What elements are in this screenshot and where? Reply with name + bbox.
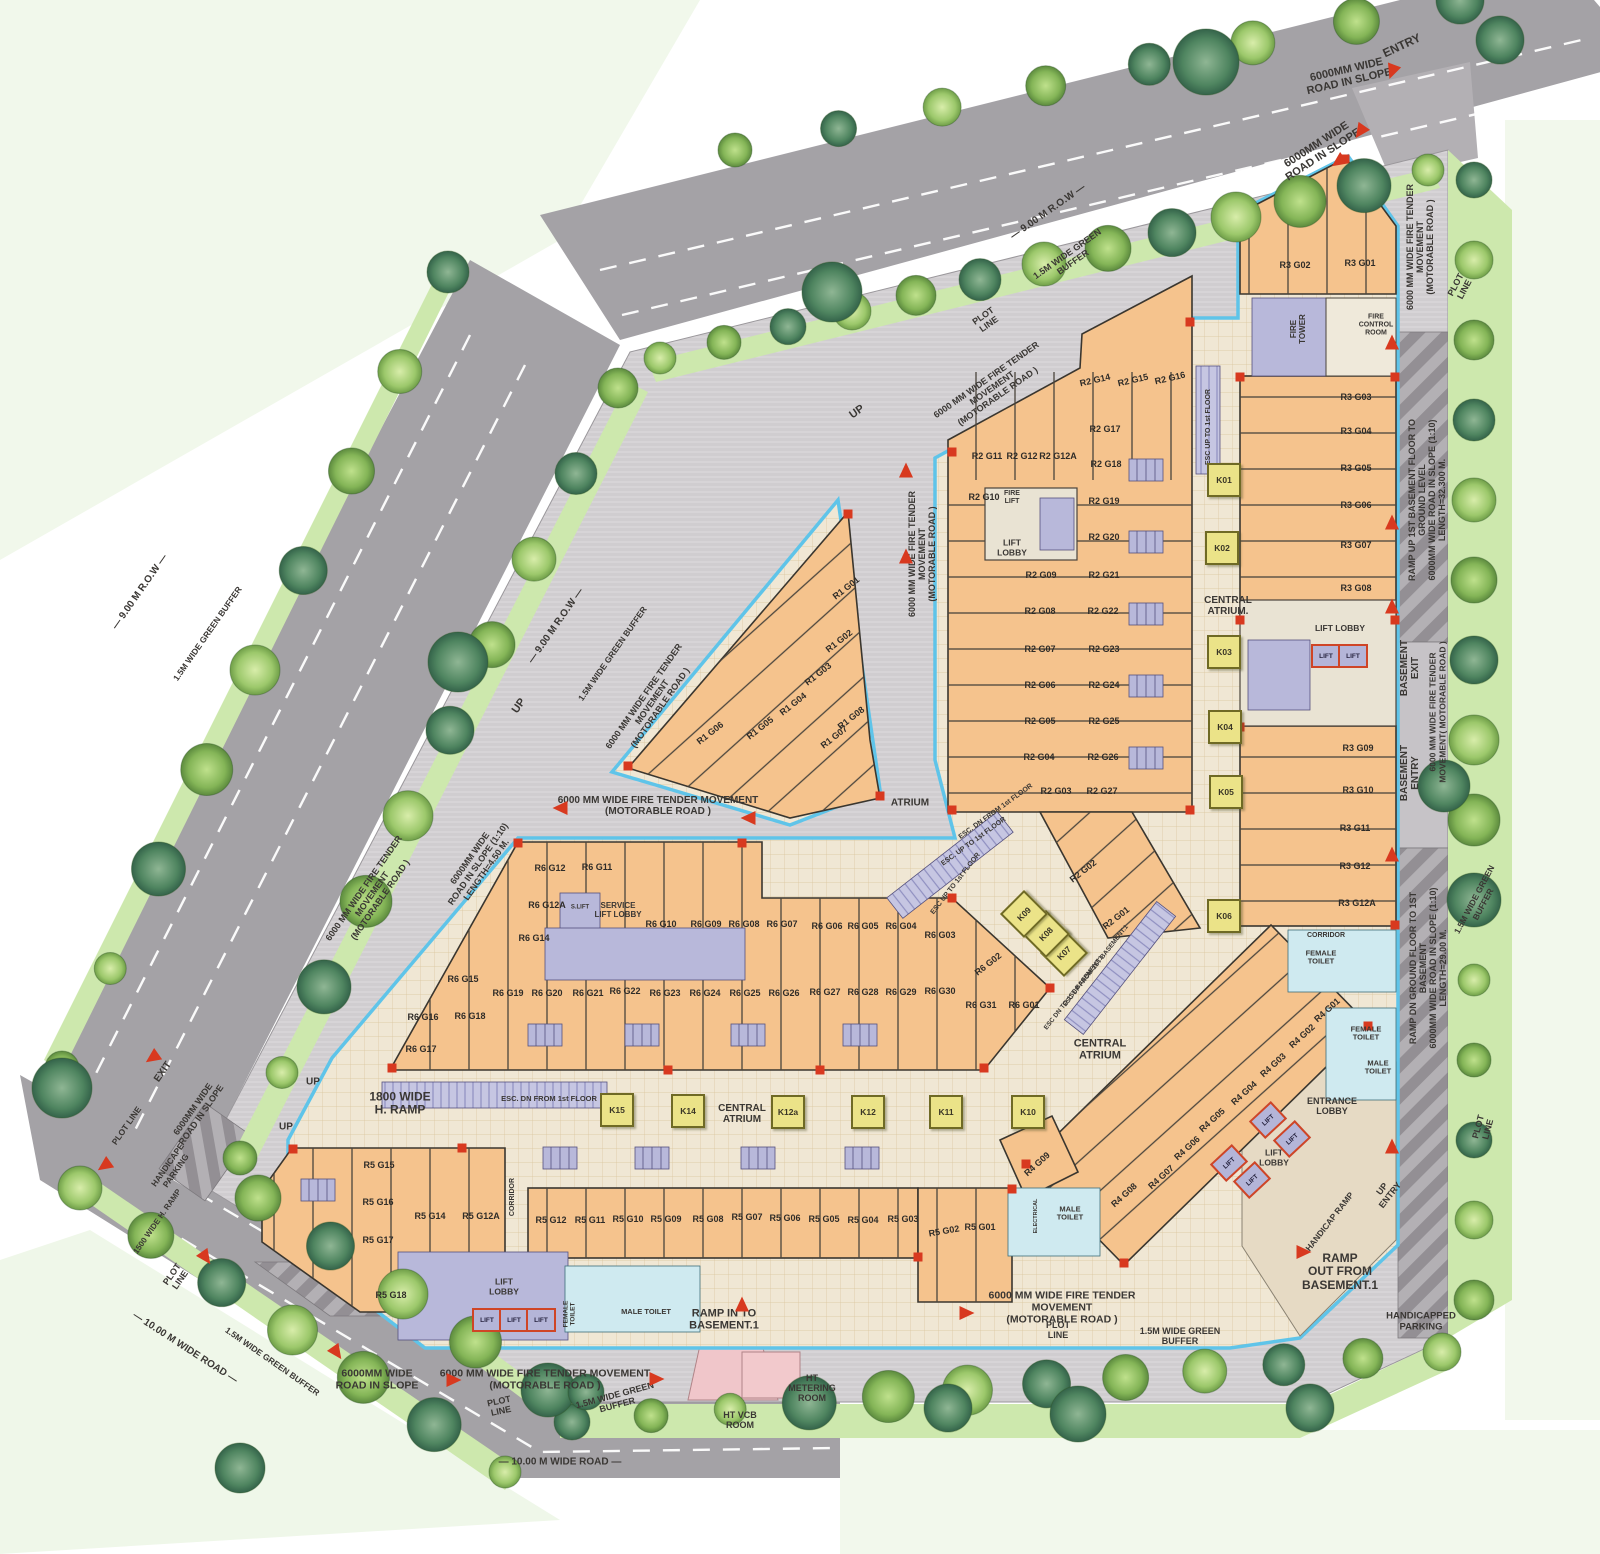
unit-label: R5 G03 [887,1214,918,1224]
fire-tender-mid: 6000 MM WIDE FIRE TENDER MOVEMENT (MOTOR… [558,795,759,817]
basement-exit: BASEMENT EXIT [1399,640,1421,696]
unit-label: R6 G20 [531,988,562,998]
unit-label: R2 G14 [1079,372,1111,389]
green-buffer-bottom-1: 1.5M WIDE GREEN BUFFER [575,1380,658,1420]
fire-tender-bottom-1: 6000 MM WIDE FIRE TENDER MOVEMENT (MOTOR… [440,1368,651,1392]
unit-label: R2 G25 [1088,716,1119,726]
unit-label: R3 G01 [1344,258,1375,268]
road-slope-tr-1: 6000MM WIDE ROAD IN SLOPE [1303,54,1393,98]
unit-label: R6 G09 [690,919,721,929]
service-lift-lobby: SERVICE LIFT LOBBY [594,902,641,920]
direction-arrow [1385,515,1399,530]
direction-arrow [1350,122,1370,142]
green-buffer-left-2: 1.5M WIDE GREEN BUFFER [172,585,245,683]
lift-lobby-r5: LIFT LOBBY [489,1277,519,1296]
unit-label: R5 G05 [808,1214,839,1224]
direction-arrow [1385,1139,1399,1154]
unit-label: R2 G06 [1024,680,1055,690]
unit-label: R4 G07 [1146,1163,1176,1191]
electrical: ELECTRICAL [1033,1199,1039,1234]
unit-label: R5 G07 [731,1212,762,1222]
direction-arrow [650,1372,665,1386]
unit-label: R6 G31 [965,1000,996,1010]
unit-label: R2 G19 [1088,496,1119,506]
wide-road-bottom: — 10.00 M WIDE ROAD — [499,1456,622,1467]
unit-label: R5 G09 [650,1214,681,1224]
row-left-2: — 9.00 M R.O.W — [110,552,170,631]
up-bl-1: UP [306,1076,320,1087]
corridor-left: CORRIDOR [509,1178,517,1216]
fire-control-room: FIRE CONTROL ROOM [1359,313,1394,336]
fire-tender-bottom-2: 6000 MM WIDE FIRE TENDER MOVEMENT (MOTOR… [988,1290,1135,1325]
handicapped-parking-br: HANDICAPPED PARKING [1386,1311,1456,1332]
unit-label: R2 G10 [968,492,999,502]
unit-label: R6 G23 [649,988,680,998]
kiosk-k11: K11 [929,1095,963,1129]
unit-label: R2 G18 [1090,459,1121,469]
kiosk-k04: K04 [1208,710,1242,744]
plot-line-left-2: PLOT LINE [161,1261,191,1292]
road-slope-tr-2: 6000MM WIDE ROAD IN SLOPE [1277,116,1363,184]
unit-label: R5 G10 [612,1214,643,1224]
plot-line-bottom-2: PLOT LINE [1046,1320,1070,1340]
unit-label: R2 G01 [1101,905,1132,932]
unit-label: R2 G12 [1006,451,1037,461]
unit-label: R1 G04 [778,691,809,718]
unit-label: R6 G07 [766,919,797,929]
lift-lobby-r3: LIFT LOBBY [1315,624,1365,634]
up-entry: UP ENTRY [1369,1174,1403,1210]
lift-box: LIFT [1311,644,1341,668]
unit-label: R5 G06 [769,1213,800,1223]
unit-label: R6 G03 [924,930,955,940]
direction-arrow [960,1306,975,1320]
road-slope-left: 6000MM WIDE ROAD IN SLOPE (1:10) LENGTH=… [438,815,519,912]
lift-box: LIFT [499,1308,529,1332]
unit-label: R2 G27 [1086,786,1117,796]
unit-label: R6 G24 [689,988,720,998]
unit-label: R6 G06 [811,921,842,931]
fire-tender-left-2: 6000 MM WIDE FIRE TENDER MOVEMENT (MOTOR… [323,834,420,955]
unit-label: R6 G14 [518,933,549,943]
unit-label: R3 G12A [1338,898,1376,908]
unit-label: R2 G02 [1068,858,1099,885]
unit-label: R6 G04 [885,921,916,931]
site-plan: ENTRY6000MM WIDE ROAD IN SLOPE6000MM WID… [0,0,1600,1554]
unit-label: R3 G05 [1340,463,1371,473]
unit-label: R2 G22 [1087,606,1118,616]
unit-label: R2 G12A [1039,451,1077,461]
unit-label: R6 G10 [645,919,676,929]
unit-label: R6 G12A [528,900,566,910]
direction-arrow [1385,335,1399,350]
unit-label: R2 G03 [1040,786,1071,796]
lift-box: LIFT [1338,644,1368,668]
unit-label: R3 G07 [1340,540,1371,550]
unit-label: R3 G04 [1340,426,1371,436]
male-toilet-r5: MALE TOILET [621,1308,671,1316]
unit-label: R2 G26 [1087,752,1118,762]
unit-label: R2 G20 [1088,532,1119,542]
unit-label: R4 G05 [1197,1106,1227,1134]
unit-label: R2 G24 [1088,680,1119,690]
unit-label: R5 G02 [928,1223,960,1238]
unit-label: R3 G06 [1340,500,1371,510]
kiosk-k06: K06 [1207,899,1241,933]
esc-dn-row: ESC. DN FROM 1st FLOOR [501,1095,597,1103]
direction-arrow [196,1248,216,1268]
female-toilet-r5: FEMALE TOILET [563,1301,578,1328]
kiosk-k12: K12 [851,1095,885,1129]
unit-label: R5 G11 [575,1215,606,1225]
direction-arrow [899,463,913,478]
kiosk-k15: K15 [600,1093,634,1127]
esc-up-col: ESC UP TO 1st FLOOR [1205,389,1213,465]
unit-label: R2 G04 [1023,752,1054,762]
road-slope-left-2: 6000MM WIDE ROAD IN SLOPE [168,1077,225,1147]
unit-label: R6 G12 [534,863,565,873]
kiosk-k12a: K12a [771,1095,805,1129]
direction-arrow [327,1343,347,1363]
unit-label: R4 G03 [1258,1051,1288,1079]
h-ramp-1800: 1800 WIDE H. RAMP [369,1091,430,1118]
fire-tender-right-top: 6000 MM WIDE FIRE TENDER MOVEMENT (MOTOR… [1405,184,1435,310]
unit-label: R4 G04 [1229,1079,1259,1107]
direction-arrow [741,811,756,825]
unit-label: R6 G01 [1008,1000,1039,1010]
unit-label: R5 G01 [964,1222,995,1232]
unit-label: R6 G21 [572,988,603,998]
female-toilet-r3: FEMALE TOILET [1306,950,1337,967]
central-atrium-row: CENTRAL ATRIUM [718,1103,766,1125]
unit-label: R6 G26 [768,988,799,998]
kiosk-k02: K02 [1205,531,1239,565]
unit-label: R3 G09 [1342,743,1373,753]
lift-box: LIFT [526,1308,556,1332]
female-toilet-r4: FEMALE TOILET [1351,1026,1382,1043]
fire-tender-right-mid: 6000 MM WIDE FIRE TENDER MOVEMENT( MOTOR… [1428,641,1447,783]
atrium: ATRIUM [891,797,929,808]
green-buffer-bottom-2: 1.5M WIDE GREEN BUFFER [1140,1326,1221,1346]
plot-line-right: PLOT LINE [1470,1114,1496,1142]
esc-up-diag: ESC. UP TO 1st FLOOR [940,816,1008,868]
kiosk-k14: K14 [671,1094,705,1128]
label-layer: ENTRY6000MM WIDE ROAD IN SLOPE6000MM WID… [0,0,1600,1554]
unit-label: R6 G15 [447,974,478,984]
unit-label: R5 G17 [362,1235,393,1245]
plot-line-tr: PLOT LINE [1445,272,1474,303]
unit-label: R4 G09 [1022,1150,1052,1178]
direction-arrow [899,549,913,564]
wide-road-bl: — 10.00 M WIDE ROAD — [130,1310,239,1386]
unit-label: R4 G06 [1172,1134,1202,1162]
unit-label: R2 G07 [1024,644,1055,654]
direction-arrow [1328,152,1348,172]
ht-vcb: HT VCB ROOM [723,1410,757,1430]
direction-arrow [1385,847,1399,862]
unit-label: R2 G09 [1025,570,1056,580]
direction-arrow [1383,63,1401,82]
unit-label: R4 G01 [1312,996,1342,1024]
unit-label: R6 G08 [728,919,759,929]
handicap-ramp: HANDICAP RAMP [1304,1191,1356,1254]
up-left-1: UP [510,696,529,716]
unit-label: R3 G03 [1340,392,1371,402]
h-ramp-left: 1500 WIDE H. RAMP [132,1188,183,1256]
direction-arrow [142,1048,162,1068]
ht-metering: HT METERING ROOM [788,1373,836,1403]
unit-label: R2 G17 [1089,424,1120,434]
entrance-lobby: ENTRANCE LOBBY [1307,1096,1357,1116]
unit-label: R4 G02 [1287,1022,1317,1050]
basement-entry: BASEMENT ENTRY [1399,745,1421,801]
lift-box: LIFT [472,1308,502,1332]
male-toilet-r4: MALE TOILET [1057,1206,1084,1223]
ramp-up-right: RAMP UP 1ST BASEMENT FLOOR TO GROUND LEV… [1407,414,1447,587]
direction-arrow [735,1297,749,1312]
unit-label: R6 G02 [973,951,1004,978]
unit-label: R6 G29 [885,987,916,997]
up-bl-2: UP [279,1121,293,1132]
unit-label: R5 G12A [462,1211,500,1221]
unit-label: R1 G03 [803,661,834,688]
esc-dn-diag: ESC. DN FROM 1st FLOOR [958,783,1035,842]
handicap-parking-left: HANDICAPE PARKING [150,1142,195,1194]
row-left-1: — 9.00 M R.O.W — [526,586,586,665]
male-toilet-r4b: MALE TOILET [1365,1060,1392,1077]
central-atrium-main: CENTRAL ATRIUM [1074,1038,1127,1063]
esc-up-diag2: ESC UP TO 1st FLOOR [930,852,983,917]
row-top: — 9.00 M R.O.W — [1008,182,1087,242]
s-lift: S.LIFT [571,905,589,912]
unit-label: R5 G15 [363,1160,394,1170]
unit-label: R4 G08 [1109,1181,1139,1209]
unit-label: R2 G16 [1154,370,1186,387]
kiosk-k01: K01 [1207,463,1241,497]
unit-label: R6 G22 [609,986,640,996]
unit-label: R6 G30 [924,986,955,996]
kiosk-k05: K05 [1209,775,1243,809]
unit-label: R1 G02 [824,628,855,655]
unit-label: R1 G01 [831,575,862,602]
unit-label: R6 G05 [847,921,878,931]
central-atrium-right: CENTRAL ATRIUM. [1204,595,1252,617]
unit-label: R6 G17 [405,1044,436,1054]
unit-label: R2 G08 [1024,606,1055,616]
fire-tender-top: 6000 MM WIDE FIRE TENDER MOVEMENT (MOTOR… [932,339,1053,436]
unit-label: R2 G11 [972,451,1003,461]
fire-tender-left-1: 6000 MM WIDE FIRE TENDER MOVEMENT (MOTOR… [603,642,700,763]
plot-line-bottom-1: PLOT LINE [486,1394,514,1419]
green-buffer-left-1: 1.5M WIDE GREEN BUFFER [577,605,650,703]
unit-label: R6 G19 [492,988,523,998]
unit-label: R6 G25 [729,988,760,998]
fire-lift-r2: FIRE LIFT [1004,490,1020,506]
unit-label: R5 G14 [414,1211,445,1221]
unit-label: R6 G16 [407,1012,438,1022]
direction-arrow [1385,599,1399,614]
unit-label: R5 G16 [362,1197,393,1207]
unit-label: R2 G23 [1088,644,1119,654]
unit-label: R2 G21 [1088,570,1119,580]
kiosk-k03: K03 [1207,635,1241,669]
ramp-out: RAMP OUT FROM BASEMENT.1 [1302,1252,1378,1292]
green-buffer-top: 1.5M WIDE GREEN BUFFER [1031,227,1109,290]
unit-label: R6 G18 [454,1011,485,1021]
unit-label: R3 G08 [1340,583,1371,593]
plot-line-top: PLOT LINE [970,305,1001,335]
unit-label: R1 G07 [819,724,850,751]
road-slope-bottom: 6000MM WIDE ROAD IN SLOPE [336,1368,419,1392]
unit-label: R5 G08 [692,1214,723,1224]
unit-label: R1 G08 [836,705,867,732]
unit-label: R1 G06 [695,720,726,747]
plot-line-left-1: PLOT LINE [110,1105,143,1147]
unit-label: R6 G28 [847,987,878,997]
entry: ENTRY [1381,31,1423,60]
green-buffer-right: 1.5M WIDE GREEN BUFFER [1453,864,1506,940]
unit-label: R2 G15 [1117,372,1149,389]
fire-tower: FIRE TOWER [1290,314,1308,344]
unit-label: R5 G12 [535,1215,566,1225]
kiosk-k10: K10 [1011,1095,1045,1129]
direction-arrow [447,1373,462,1387]
corridor-right: CORRIDOR [1307,932,1345,940]
unit-label: R3 G12 [1339,861,1370,871]
up-top: UP [847,403,867,422]
unit-label: R2 G05 [1024,716,1055,726]
direction-arrow [1297,1245,1312,1259]
unit-label: R3 G02 [1279,260,1310,270]
unit-label: R6 G27 [809,987,840,997]
unit-label: R6 G11 [582,862,613,872]
unit-label: R3 G11 [1340,823,1371,833]
unit-label: R5 G18 [375,1290,406,1300]
unit-label: R3 G10 [1342,785,1373,795]
unit-label: R5 G04 [847,1215,878,1225]
direction-arrow [94,1156,114,1176]
lift-lobby-r2: LIFT LOBBY [997,538,1027,557]
unit-label: R1 G05 [745,715,776,742]
ramp-dn-right: RAMP DN GROUND FLOOR TO 1ST BASEMENT 600… [1408,882,1448,1054]
direction-arrow [553,801,568,815]
green-buffer-bl: 1.5M WIDE GREEN BUFFER [223,1326,321,1399]
